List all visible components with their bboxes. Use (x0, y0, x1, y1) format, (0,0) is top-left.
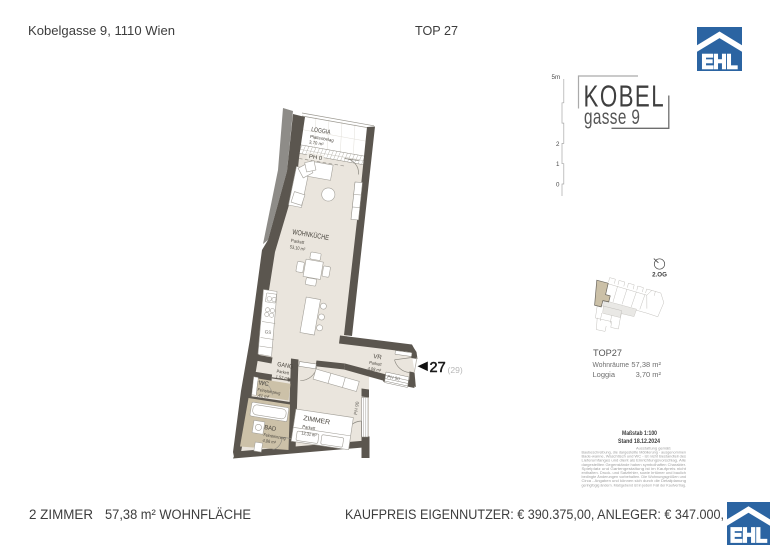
svg-text:2.OG: 2.OG (652, 272, 667, 279)
svg-text:2 ZIMMER: 2 ZIMMER (29, 507, 93, 522)
svg-text:57,38 m² WOHNFLÄCHE: 57,38 m² WOHNFLÄCHE (105, 507, 251, 522)
svg-text:EHL: EHL (730, 524, 767, 545)
svg-text:1: 1 (556, 161, 560, 168)
svg-text:Wohnräume: Wohnräume (593, 360, 630, 369)
svg-text:Loggia: Loggia (593, 370, 616, 379)
svg-text:57,38 m²: 57,38 m² (631, 360, 661, 369)
svg-text:5m: 5m (552, 74, 561, 81)
svg-text:3,70 m²: 3,70 m² (636, 370, 662, 379)
svg-text:EHL: EHL (702, 52, 738, 74)
svg-text:Kobelgasse 9, 1110 Wien: Kobelgasse 9, 1110 Wien (28, 23, 175, 38)
svg-text:Maßstab 1:100: Maßstab 1:100 (622, 431, 658, 437)
svg-text:gasse 9: gasse 9 (584, 105, 640, 129)
svg-text:TOP27: TOP27 (593, 348, 622, 359)
svg-text:0: 0 (556, 181, 560, 188)
svg-text:Stand 18.12.2024: Stand 18.12.2024 (618, 439, 661, 445)
svg-text:(29): (29) (448, 365, 463, 375)
svg-text:27: 27 (430, 360, 446, 376)
svg-text:2: 2 (556, 141, 560, 148)
svg-text:TOP 27: TOP 27 (415, 23, 458, 38)
svg-text:GS: GS (264, 329, 271, 335)
svg-text:KAUFPREIS EIGENNUTZER: € 390.3: KAUFPREIS EIGENNUTZER: € 390.375,00, ANL… (345, 507, 724, 522)
svg-text:geringfügig ändern. Maßgebend: geringfügig ändern. Maßgebend ist in jed… (582, 482, 687, 487)
